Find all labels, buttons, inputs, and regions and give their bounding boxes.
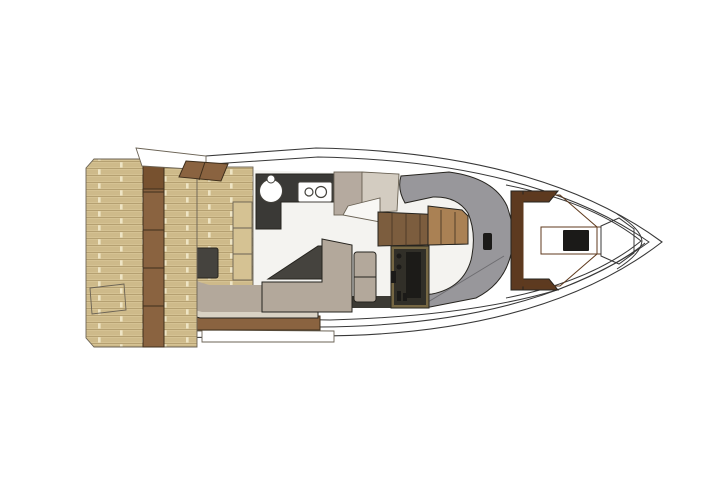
door-detail	[397, 291, 401, 301]
yacht-floorplan	[0, 0, 724, 483]
door-knob	[397, 254, 402, 259]
cockpit-bench	[233, 202, 252, 280]
sink-faucet	[267, 175, 275, 183]
door-detail	[403, 293, 407, 301]
yacht-floorplan-image	[0, 0, 724, 483]
door-hinge	[391, 271, 396, 283]
door-knob	[397, 265, 402, 270]
cockpit-step	[179, 161, 228, 181]
stairs-upper	[428, 206, 468, 245]
swim-platform	[86, 159, 197, 347]
bow-table	[563, 230, 589, 251]
dash-vent	[483, 233, 492, 250]
door-panel	[406, 252, 421, 298]
stern-step	[202, 330, 334, 342]
bow-backrest	[511, 191, 523, 290]
